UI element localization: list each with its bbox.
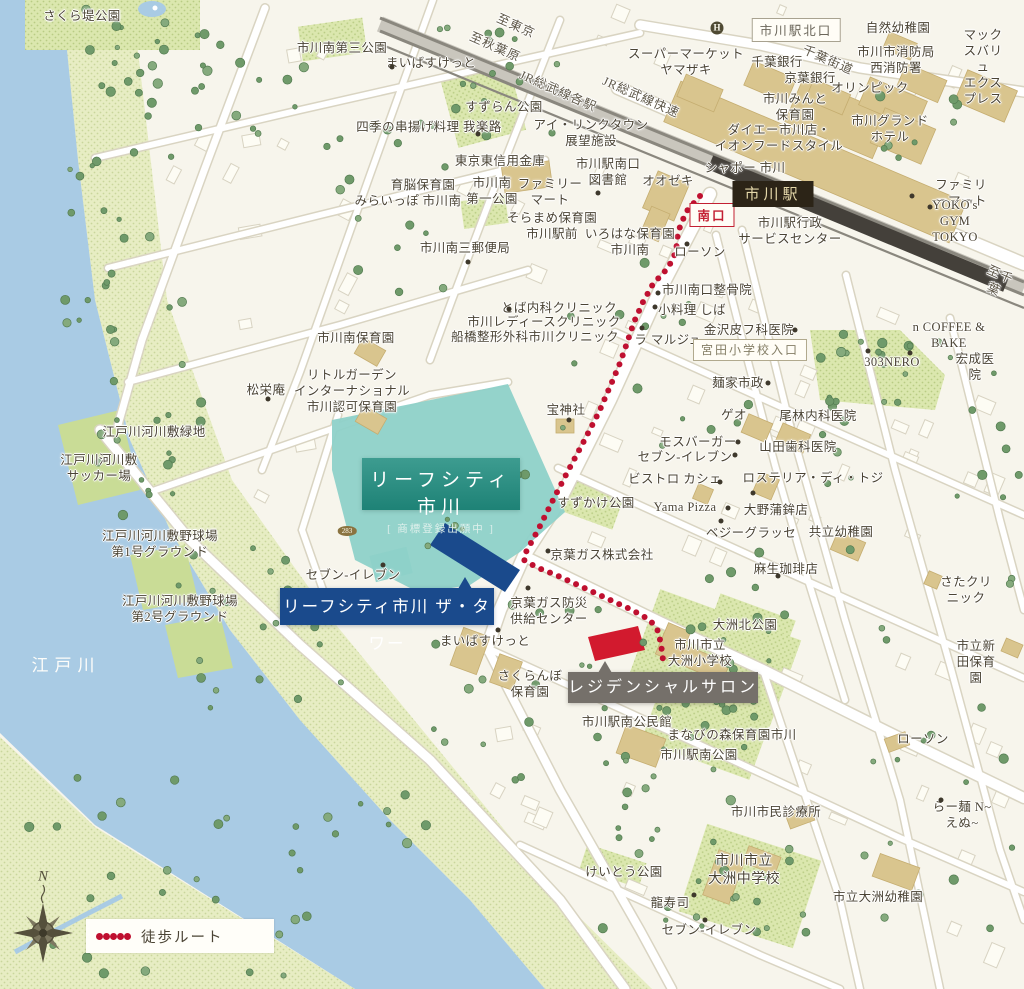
walk-route-dot (521, 557, 527, 563)
walk-route-dot (649, 283, 655, 289)
walk-route-dot (563, 472, 569, 478)
walk-route-dot (626, 334, 632, 340)
walk-route-dot (594, 414, 600, 420)
walk-route-dot (642, 614, 648, 620)
residential-salon-label: レジデンシャルサロン (568, 679, 758, 696)
walk-route-dot (613, 370, 619, 376)
route-dot-icon (117, 933, 124, 940)
walk-route-dot (616, 361, 622, 367)
walk-route-dot (545, 506, 551, 512)
walk-route-dot (680, 216, 686, 222)
route-dot-icon (124, 933, 131, 940)
walk-route-dot (567, 464, 573, 470)
walk-route-dot (573, 581, 579, 587)
walk-route-dot (616, 601, 622, 607)
walk-route-dot (640, 299, 646, 305)
walk-route-dot (657, 636, 663, 642)
walk-route-dot (674, 243, 680, 249)
walk-route-dot (541, 515, 547, 521)
map-canvas: さくら堤公園市川南第三公園まいばすけっとすずらん公園四季の串揚げ料理 我楽路アイ… (0, 0, 1024, 989)
walk-route-dot (537, 523, 543, 529)
walk-route-dot (671, 252, 677, 258)
walk-route-dot (564, 577, 570, 583)
leaf-city-subtitle: [ 商標登録出願中 ] (362, 521, 520, 536)
walk-route-dot (645, 291, 651, 297)
route-dot-icon (110, 933, 117, 940)
walk-route-dot (530, 562, 536, 568)
walk-route-label: 徒歩ルート (141, 926, 224, 947)
leaf-city-area-callout: リーフシティ市川 [ 商標登録出願中 ] (362, 458, 520, 510)
callout-pointer-icon (458, 577, 472, 589)
walk-route-dot (675, 234, 681, 240)
walk-route-dot (620, 352, 626, 358)
walk-route-dot (697, 193, 703, 199)
walk-route-dot (581, 439, 587, 445)
leaf-city-title: リーフシティ市川 (362, 465, 520, 519)
residential-salon-callout: レジデンシャルサロン (568, 672, 758, 703)
walk-route-dot (636, 308, 642, 314)
walk-route-dot (590, 589, 596, 595)
walk-route-dot (602, 396, 608, 402)
walk-route-dot (677, 225, 683, 231)
walk-route-dot (691, 200, 697, 206)
walk-route-dot (608, 597, 614, 603)
walk-route-dot (585, 430, 591, 436)
walk-route-dot (598, 405, 604, 411)
route-dot-icon (96, 933, 103, 940)
walk-route-legend: 徒歩ルート (86, 919, 274, 953)
route-dots-icon (96, 927, 131, 945)
walk-route-dot (609, 379, 615, 385)
walk-route-dot (662, 268, 668, 274)
walk-route-dot (538, 566, 544, 572)
walk-route-dot (572, 456, 578, 462)
walk-route-dot (550, 498, 556, 504)
walk-route-dot (623, 343, 629, 349)
walk-route-dot (605, 388, 611, 394)
walk-route-dot (629, 325, 635, 331)
walk-route-dot (655, 627, 661, 633)
walk-route-dot (528, 540, 534, 546)
walk-route-dot (632, 316, 638, 322)
walk-route-dot (554, 489, 560, 495)
walk-route-dot (582, 585, 588, 591)
walk-route-dot (633, 609, 639, 615)
walk-route-dot (649, 620, 655, 626)
walk-route-dot (684, 207, 690, 213)
route-dot-icon (103, 933, 110, 940)
compass-north-label: N (38, 869, 48, 886)
walk-route-dot (558, 481, 564, 487)
tower-callout: リーフシティ市川 ザ・タワー (280, 588, 494, 625)
walk-route-dot (625, 605, 631, 611)
callout-pointer-icon (598, 661, 612, 673)
walk-route-dot (667, 261, 673, 267)
walk-route-dot (660, 655, 666, 661)
walk-route-dot (659, 646, 665, 652)
walk-route-dot (589, 422, 595, 428)
walk-route-dot (655, 275, 661, 281)
walk-route-dot (556, 573, 562, 579)
walk-route-dot (576, 447, 582, 453)
walk-route-dot (547, 570, 553, 576)
walk-route-dot (599, 593, 605, 599)
walk-route-dot (523, 548, 529, 554)
walk-route-dot (532, 532, 538, 538)
